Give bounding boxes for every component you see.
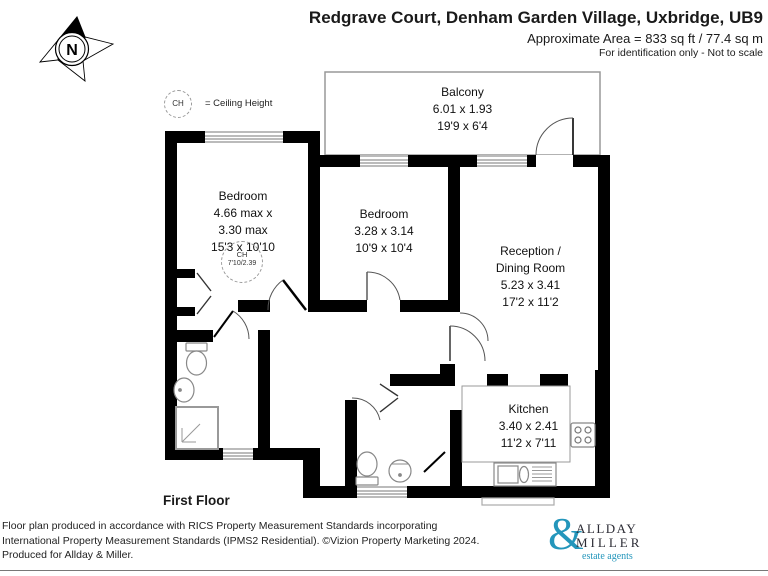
logo-tagline: estate agents bbox=[582, 551, 633, 562]
room-imperial: 11'2 x 7'11 bbox=[456, 435, 601, 452]
room-metric: 5.23 x 3.41 bbox=[458, 277, 603, 294]
storage-doors bbox=[380, 384, 398, 412]
bathroom-door bbox=[214, 311, 249, 339]
reception-label: Reception / Dining Room 5.23 x 3.41 17'2… bbox=[458, 243, 603, 311]
hall-door bbox=[450, 326, 485, 361]
closet-doors bbox=[197, 273, 211, 314]
room-imperial: 17'2 x 11'2 bbox=[458, 294, 603, 311]
floor-plan-drawing bbox=[0, 0, 768, 576]
footer-disclaimer: Floor plan produced in accordance with R… bbox=[2, 519, 479, 563]
room-name: Bedroom bbox=[173, 188, 313, 205]
reception-door bbox=[460, 313, 488, 341]
balcony-door-opening bbox=[536, 155, 573, 167]
floor-label: First Floor bbox=[163, 493, 230, 508]
bedroom1-ceiling-height: CH 7'10/2.39 bbox=[221, 241, 263, 283]
bedroom2-door bbox=[367, 272, 400, 300]
logo-name-line2: MILLER bbox=[576, 535, 642, 551]
window bbox=[205, 131, 283, 143]
kitchen-threshold bbox=[482, 498, 554, 505]
ch-value: 7'10/2.39 bbox=[222, 259, 262, 268]
basin-icon bbox=[174, 378, 194, 402]
bedroom1-door bbox=[268, 280, 306, 310]
sink-icon bbox=[494, 463, 556, 486]
room-name: Reception / bbox=[458, 243, 603, 260]
room-name: Bedroom bbox=[314, 206, 454, 223]
agent-logo: & ALLDAY MILLER estate agents bbox=[548, 514, 658, 566]
kitchen-label: Kitchen 3.40 x 2.41 11'2 x 7'11 bbox=[456, 401, 601, 452]
room-metric2: 3.30 max bbox=[173, 222, 313, 239]
room-name: Kitchen bbox=[456, 401, 601, 418]
room-metric: 6.01 x 1.93 bbox=[390, 101, 535, 118]
room-imperial: 19'9 x 6'4 bbox=[390, 118, 535, 135]
window bbox=[360, 155, 408, 167]
window bbox=[357, 486, 407, 498]
room-metric: 4.66 max x bbox=[173, 205, 313, 222]
ch-abbr: CH bbox=[222, 250, 262, 259]
room-imperial: 10'9 x 10'4 bbox=[314, 240, 454, 257]
toilet-icon bbox=[186, 343, 207, 375]
room-name2: Dining Room bbox=[458, 260, 603, 277]
footer-line1: Floor plan produced in accordance with R… bbox=[2, 519, 479, 534]
wc-basin-icon bbox=[389, 460, 411, 482]
footer-line3: Produced for Allday & Miller. bbox=[2, 548, 479, 563]
room-metric: 3.40 x 2.41 bbox=[456, 418, 601, 435]
room-name: Balcony bbox=[390, 84, 535, 101]
bedroom2-label: Bedroom 3.28 x 3.14 10'9 x 10'4 bbox=[314, 206, 454, 257]
room-metric: 3.28 x 3.14 bbox=[314, 223, 454, 240]
window bbox=[477, 155, 527, 167]
wc-toilet-icon bbox=[356, 452, 378, 485]
window bbox=[223, 448, 253, 460]
bottom-divider bbox=[0, 570, 768, 571]
floorplan-page: N Redgrave Court, Denham Garden Village,… bbox=[0, 0, 768, 576]
footer-line2: International Property Measurement Stand… bbox=[2, 534, 479, 549]
shower-icon bbox=[176, 407, 218, 449]
balcony-label: Balcony 6.01 x 1.93 19'9 x 6'4 bbox=[390, 84, 535, 135]
